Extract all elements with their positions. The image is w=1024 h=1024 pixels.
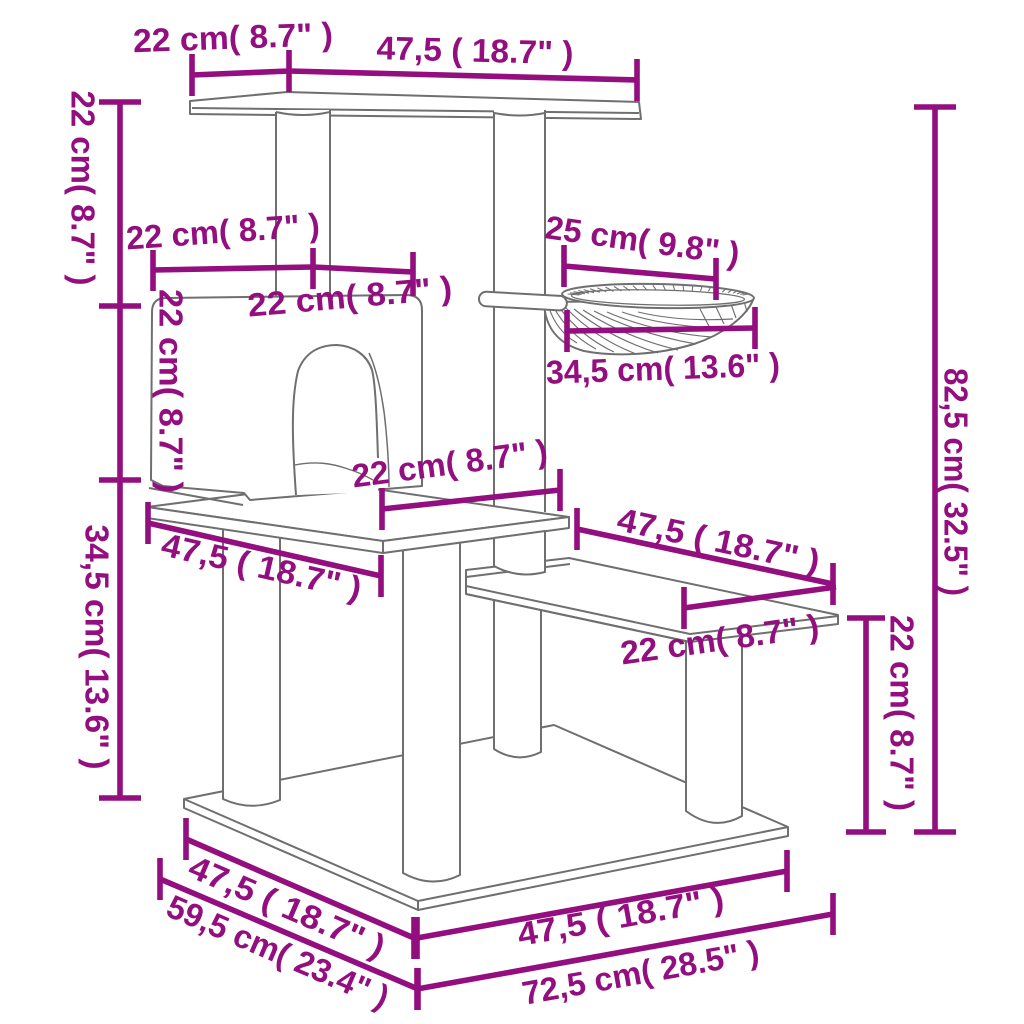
svg-text:22 cm( 8.7" ): 22 cm( 8.7" ) xyxy=(883,615,920,811)
svg-text:47,5 ( 18.7" ): 47,5 ( 18.7" ) xyxy=(376,29,574,71)
svg-text:34,5 cm( 13.6" ): 34,5 cm( 13.6" ) xyxy=(78,525,115,770)
svg-text:22 cm( 8.7" ): 22 cm( 8.7" ) xyxy=(64,91,101,286)
svg-text:82,5 cm( 32.5" ): 82,5 cm( 32.5" ) xyxy=(937,368,974,596)
svg-text:22 cm( 8.7" ): 22 cm( 8.7" ) xyxy=(152,289,189,493)
svg-text:22 cm( 8.7" ): 22 cm( 8.7" ) xyxy=(132,15,333,59)
